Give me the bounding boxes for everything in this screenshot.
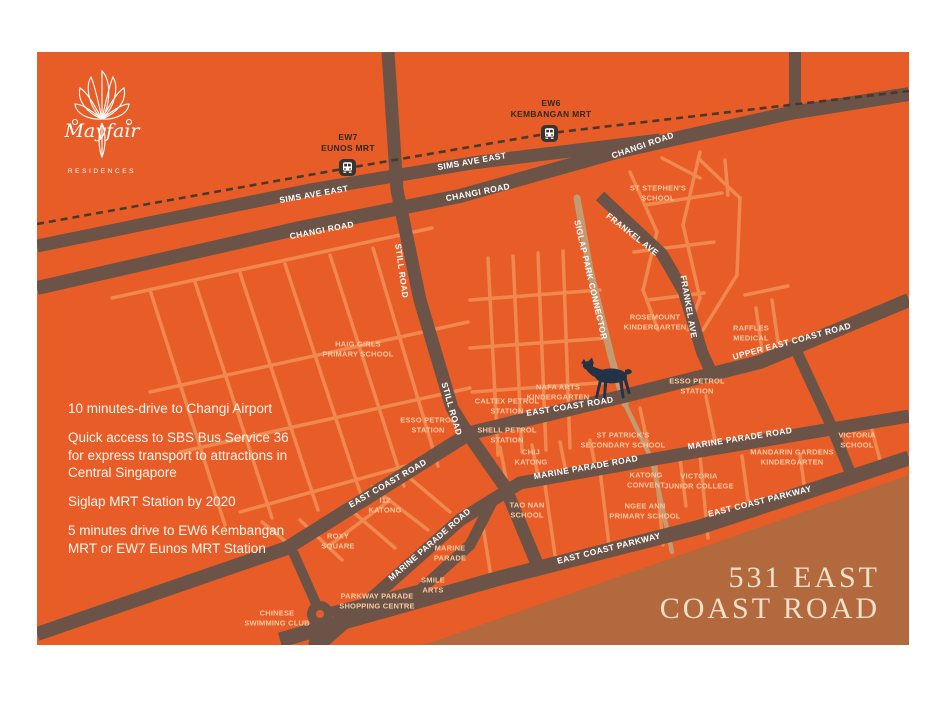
place-label: CHIJ KATONG <box>514 447 547 467</box>
place-label: VICTORIA SCHOOL <box>838 430 875 450</box>
map-area: Mayfair RESIDENCES EW7 EUNOS MRT EW6 KEM… <box>37 52 909 645</box>
place-label: ST STEPHEN'S SCHOOL <box>630 183 686 203</box>
brand-subtitle: RESIDENCES <box>68 168 136 175</box>
mayfair-logo: Mayfair RESIDENCES <box>63 61 141 179</box>
place-label: ESSO PETROL STATION <box>400 415 456 435</box>
address-title: 531 EAST COAST ROAD <box>660 562 880 624</box>
info-line: 10 minutes-drive to Changi Airport <box>68 400 318 418</box>
place-label: KATONG CONVENT <box>627 470 665 490</box>
selling-points: 10 minutes-drive to Changi Airport Quick… <box>68 400 318 569</box>
place-label: SHELL PETROL STATION <box>477 425 536 445</box>
place-label: NGEE ANN PRIMARY SCHOOL <box>609 501 680 521</box>
info-line: Quick access to SBS Bus Service 36 for e… <box>68 429 318 482</box>
place-label: VICTORIA JUNIOR COLLEGE <box>664 471 733 491</box>
address-line-2: COAST ROAD <box>660 593 880 624</box>
info-line: Siglap MRT Station by 2020 <box>68 493 318 511</box>
place-label: ROXY SQUARE <box>321 531 354 551</box>
ew6-station-label: EW6 KEMBANGAN MRT <box>511 98 592 119</box>
place-label: ST PATRICK'S SECONDARY SCHOOL <box>581 430 666 450</box>
ew7-station-label: EW7 EUNOS MRT <box>321 132 375 153</box>
place-label: MARINE PARADE <box>434 543 466 563</box>
place-label: ESSO PETROL STATION <box>669 376 725 396</box>
place-label: MANDARIN GARDENS KINDERGARTEN <box>750 447 834 467</box>
place-label: CHINESE SWIMMING CLUB <box>244 608 310 628</box>
place-label: RAFFLES MEDICAL <box>733 323 769 343</box>
ew7-mrt-icon <box>339 159 356 176</box>
place-label: SMILE ARTS <box>421 575 445 595</box>
place-label: TAO NAN SCHOOL <box>509 500 544 520</box>
palm-fan-icon <box>73 71 132 157</box>
place-label: CALTEX PETROL STATION <box>475 396 540 416</box>
roundabout <box>307 601 333 627</box>
place-label: PARKWAY PARADE SHOPPING CENTRE <box>339 591 415 611</box>
info-line: 5 minutes drive to EW6 Kembangan MRT or … <box>68 522 318 558</box>
brand-name: Mayfair <box>63 120 141 142</box>
ew6-mrt-icon <box>541 125 558 142</box>
place-label: ROSEMOUNT KINDERGARTEN <box>624 312 687 332</box>
location-map-poster: Mayfair RESIDENCES EW7 EUNOS MRT EW6 KEM… <box>0 0 943 717</box>
address-line-1: 531 EAST <box>660 562 880 593</box>
place-label: I12 KATONG <box>368 495 401 515</box>
place-label: HAIG GIRLS PRIMARY SCHOOL <box>322 339 393 359</box>
